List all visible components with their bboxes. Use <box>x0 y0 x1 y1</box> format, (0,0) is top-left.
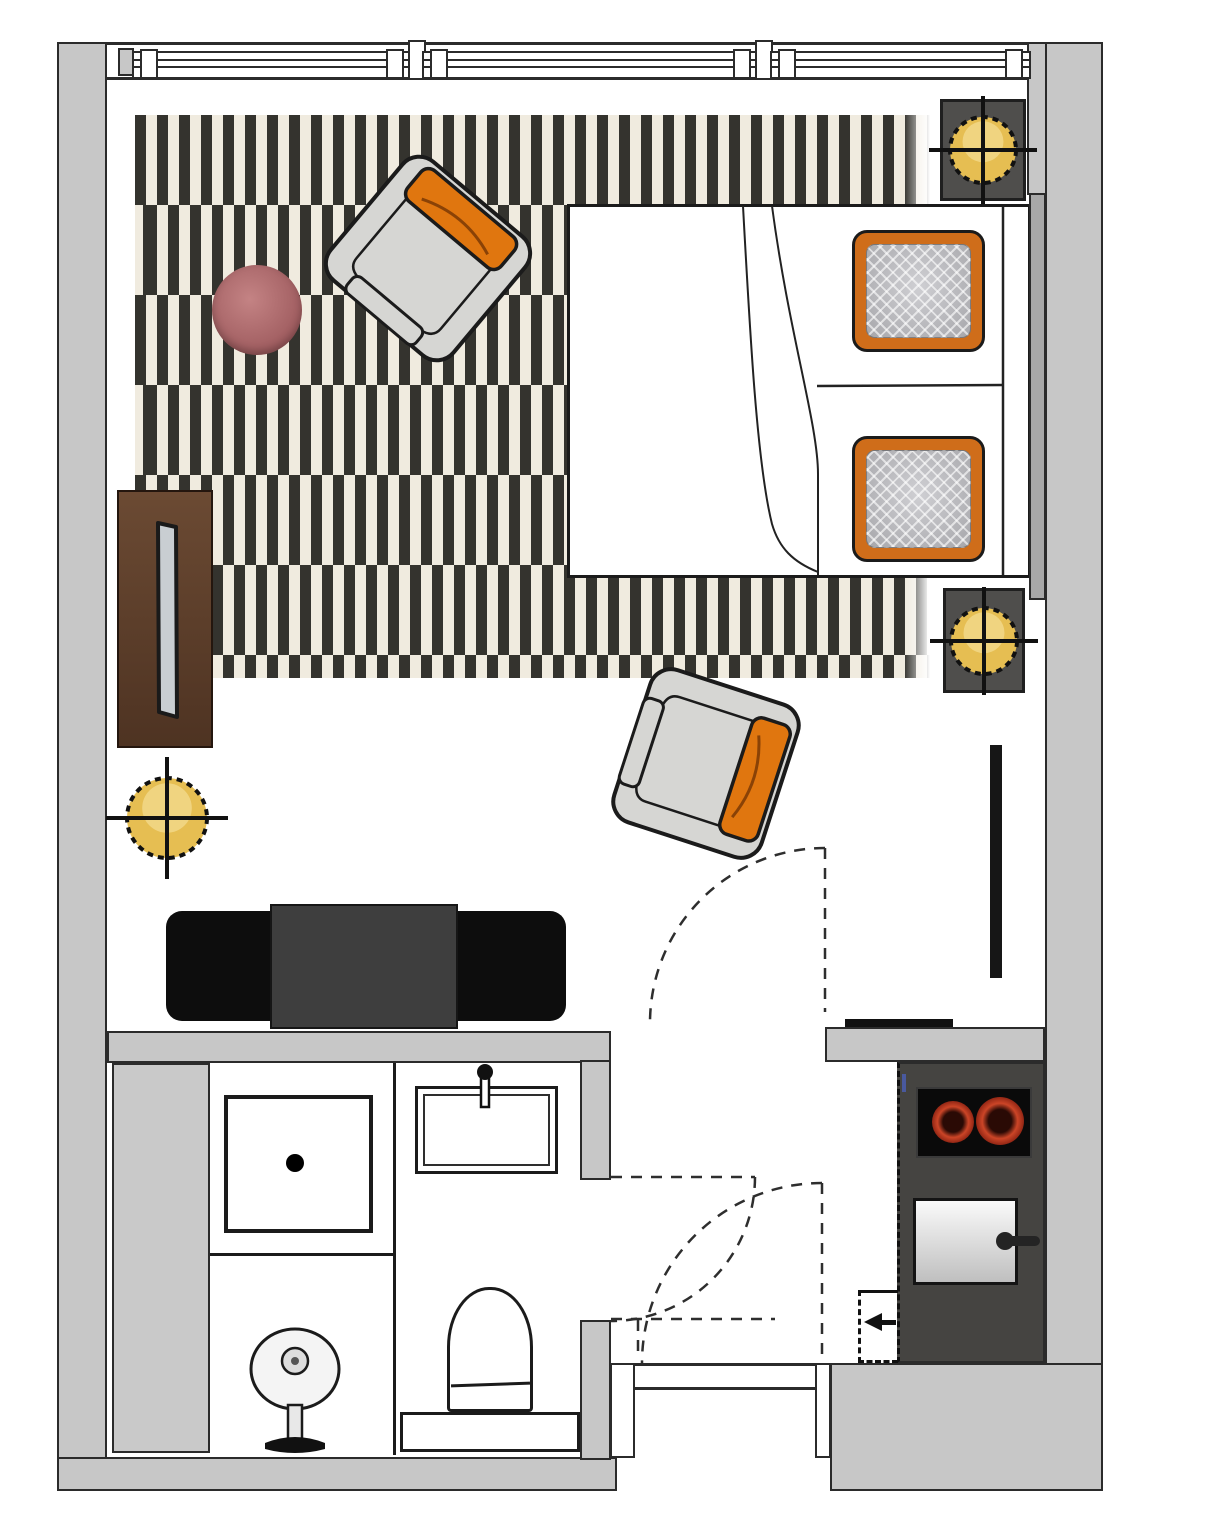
window-band <box>107 42 1027 80</box>
bathroom-divider <box>393 1063 396 1455</box>
shower-drain-icon <box>286 1154 304 1172</box>
partition-bathroom <box>107 1031 611 1063</box>
wall-bottom-right <box>830 1363 1103 1491</box>
shower-tray-line <box>210 1253 396 1256</box>
faucet-icon <box>474 1063 496 1109</box>
toilet-platform <box>400 1412 580 1452</box>
entry-arrow-tail <box>880 1320 896 1325</box>
entry-jamb-left <box>610 1363 635 1458</box>
bed-headboard-strip <box>1029 193 1046 600</box>
wall-right <box>1045 42 1103 1491</box>
entry-jamb-right <box>815 1363 831 1458</box>
oven-handle-knob <box>996 1232 1014 1250</box>
entry-threshold-line-1 <box>610 1363 831 1366</box>
toilet <box>447 1287 533 1412</box>
window-section-3 <box>770 51 1031 79</box>
wall-left <box>57 42 107 1491</box>
window-section-1 <box>132 51 412 79</box>
bathroom-wall-upper <box>580 1060 611 1180</box>
installation-strip <box>112 1063 210 1453</box>
floor-plan <box>0 0 1212 1536</box>
entry-threshold-line-2 <box>610 1387 831 1390</box>
burner-right-icon <box>976 1097 1024 1145</box>
kitchen-marker <box>902 1074 906 1092</box>
burner-left-icon <box>932 1101 974 1143</box>
partition-kitchen <box>825 1027 1045 1062</box>
bathroom-wall-lower <box>580 1320 611 1460</box>
washbasin-pedestal <box>245 1325 345 1455</box>
wall-bottom-left <box>57 1457 617 1491</box>
window-section-2 <box>422 51 759 79</box>
